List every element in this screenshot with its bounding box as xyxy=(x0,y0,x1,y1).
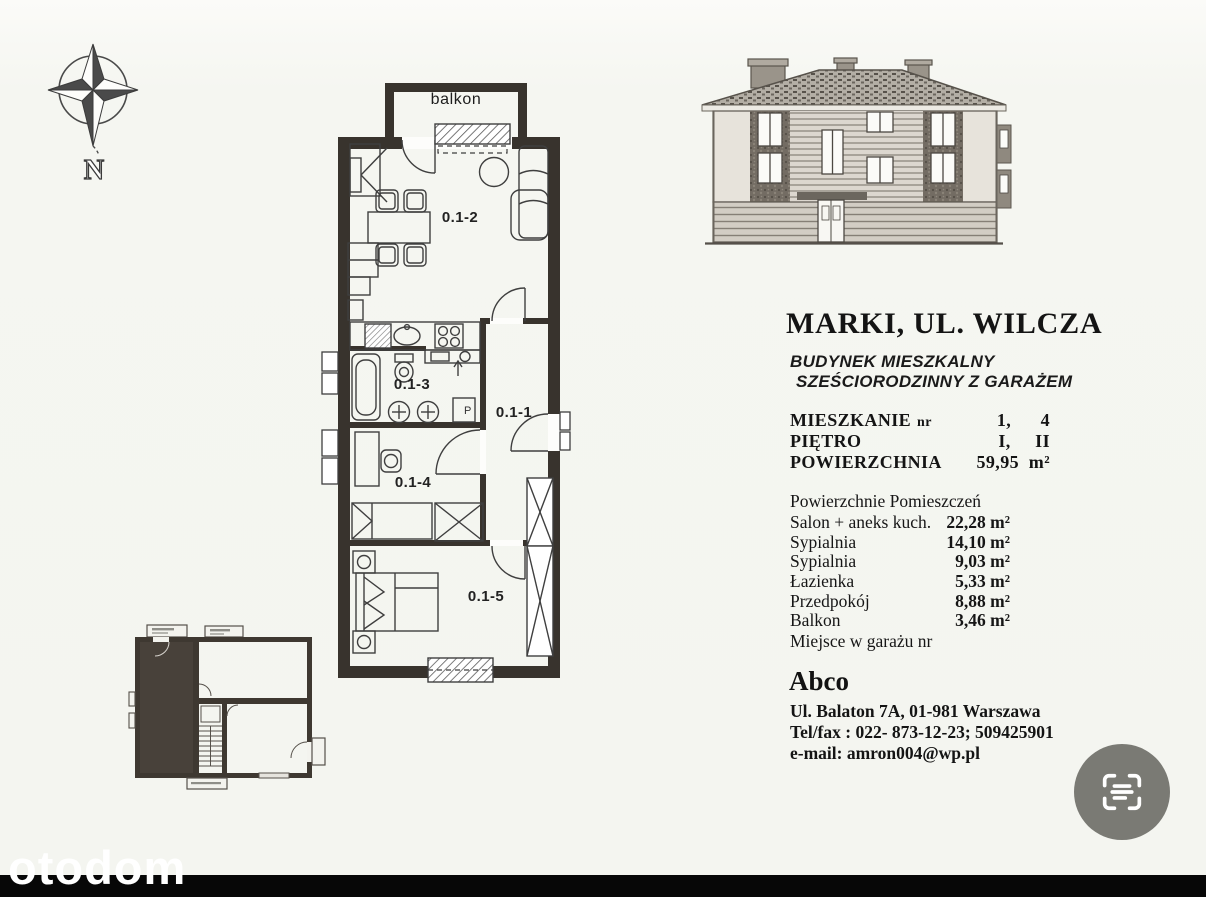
detail-value: 59,95 m² xyxy=(977,452,1051,473)
listing-title: MARKI, UL. WILCZA xyxy=(786,307,1102,341)
table-row: Sypialnia 14,10 m² xyxy=(790,533,1010,553)
agency-contact: Ul. Balaton 7A, 01-981 Warszawa Tel/fax … xyxy=(790,701,1054,764)
detail-row-area: POWIERZCHNIA 59,95 m² xyxy=(790,452,1060,473)
room-area-value: 9,03 m² xyxy=(955,552,1010,572)
detail-label: PIĘTRO xyxy=(790,431,861,451)
room-name: Łazienka xyxy=(790,572,854,592)
room-areas-table: Powierzchnie Pomieszczeń Salon + aneks k… xyxy=(790,492,1010,652)
building-description-line2: SZEŚCIORODZINNY Z GARAŻEM xyxy=(790,372,1072,392)
agency-phone: Tel/fax : 022- 873-12-23; 509425901 xyxy=(790,722,1054,743)
balcony-label: balkon xyxy=(411,91,501,109)
watermark-logo: otodom xyxy=(8,843,186,893)
room-label-study: 0.1-4 xyxy=(377,474,449,492)
scanned-floorplan-page: N xyxy=(0,0,1206,897)
table-row: Balkon 3,46 m² xyxy=(790,611,1010,631)
room-name: Przedpokój xyxy=(790,592,870,612)
table-row: Salon + aneks kuch. 22,28 m² xyxy=(790,513,1010,533)
living-room-furniture xyxy=(348,144,548,320)
room-name: Balkon xyxy=(790,611,841,631)
key-plan-drawing xyxy=(128,620,328,795)
washer-label: P xyxy=(464,405,471,417)
agency-name: Abco xyxy=(789,666,849,696)
room-area-value: 5,33 m² xyxy=(955,572,1010,592)
room-name: Sypialnia xyxy=(790,552,856,572)
room-label-bathroom: 0.1-3 xyxy=(376,376,448,394)
room-name: Salon + aneks kuch. xyxy=(790,513,931,533)
detail-label: MIESZKANIE xyxy=(790,410,911,430)
scan-text-icon xyxy=(1096,766,1148,818)
room-area-value: 8,88 m² xyxy=(955,592,1010,612)
detail-label-suffix: nr xyxy=(911,415,932,430)
room-area-value: 22,28 m² xyxy=(946,513,1010,533)
agency-email: e-mail: amron004@wp.pl xyxy=(790,743,1054,764)
compass-rose-icon: N xyxy=(38,30,148,185)
scan-text-button[interactable] xyxy=(1074,744,1170,840)
room-areas-heading: Powierzchnie Pomieszczeń xyxy=(790,492,1010,513)
table-row: Przedpokój 8,88 m² xyxy=(790,592,1010,612)
staircase xyxy=(199,726,222,766)
door-swings xyxy=(402,140,548,579)
bedroom-furniture xyxy=(353,551,438,653)
table-row: Łazienka 5,33 m² xyxy=(790,572,1010,592)
building-elevation-drawing xyxy=(693,48,1015,253)
room-label-hall: 0.1-1 xyxy=(478,404,550,422)
room-area-value: 3,46 m² xyxy=(955,611,1010,631)
building-description: BUDYNEK MIESZKALNY SZEŚCIORODZINNY Z GAR… xyxy=(790,352,1072,392)
wardrobe xyxy=(527,478,553,656)
compass-north-label: N xyxy=(84,155,104,185)
highlighted-unit xyxy=(140,642,193,773)
table-row: Sypialnia 9,03 m² xyxy=(790,552,1010,572)
detail-value: 1, 4 xyxy=(997,410,1050,431)
detail-label: POWIERZCHNIA xyxy=(790,452,942,472)
apartment-details: MIESZKANIEnr 1, 4 PIĘTRO I, II POWIERZCH… xyxy=(790,410,1060,473)
room-label-living: 0.1-2 xyxy=(424,209,496,227)
detail-value: I, II xyxy=(998,431,1050,452)
garage-space-note: Miejsce w garażu nr xyxy=(790,632,1010,652)
detail-row-floor: PIĘTRO I, II xyxy=(790,431,1060,452)
agency-address: Ul. Balaton 7A, 01-981 Warszawa xyxy=(790,701,1054,722)
room-name: Sypialnia xyxy=(790,533,856,553)
building-description-line1: BUDYNEK MIESZKALNY xyxy=(790,352,1072,372)
detail-row-apartment-number: MIESZKANIEnr 1, 4 xyxy=(790,410,1060,431)
bedroom-window xyxy=(428,658,493,682)
room-label-bedroom: 0.1-5 xyxy=(450,588,522,606)
room-area-value: 14,10 m² xyxy=(946,533,1010,553)
